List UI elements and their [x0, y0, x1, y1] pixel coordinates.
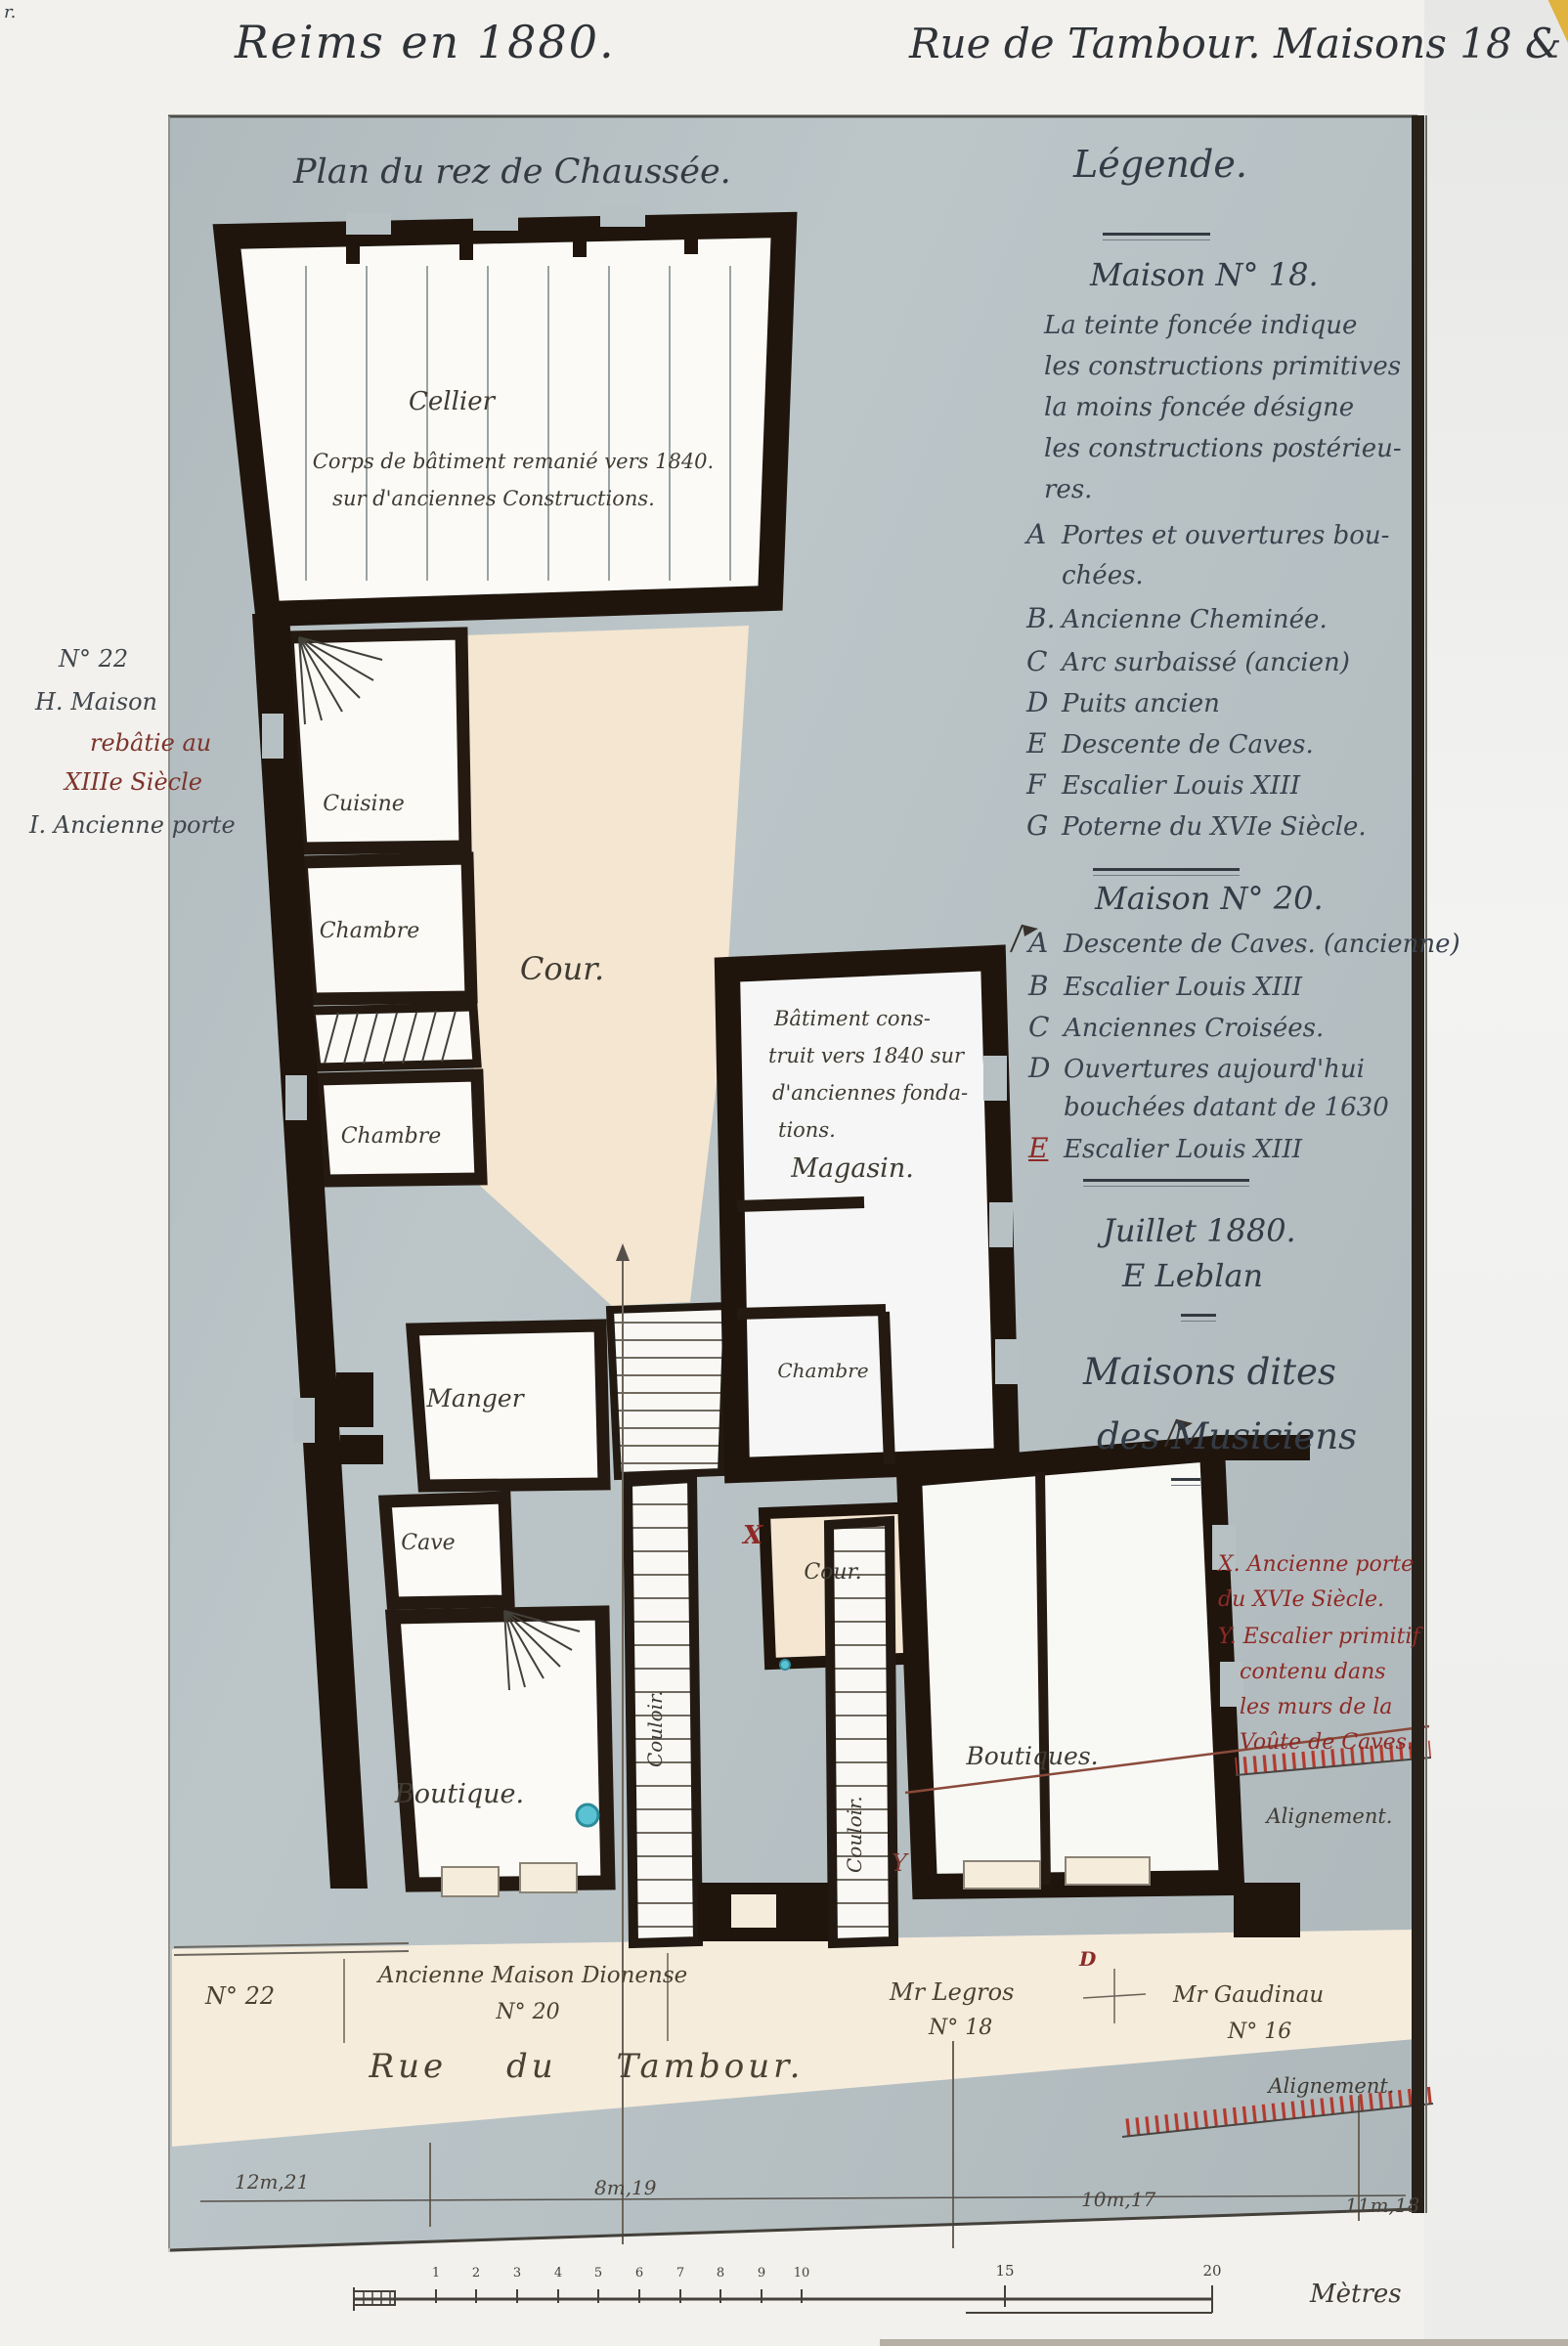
plan-title: Plan du rez de Chaussée. — [293, 152, 731, 192]
legend-letter: C — [1028, 1011, 1064, 1043]
corner-note: r. — [4, 2, 16, 22]
legend-date: Juillet 1880. — [1103, 1212, 1296, 1249]
scale-tick-label: 3 — [513, 2266, 521, 2281]
legend-title: Légende. — [1073, 143, 1247, 186]
room-label-cellier: Cellier — [409, 387, 495, 416]
side-note-line: contenu dans — [1240, 1660, 1386, 1684]
margin-note-number: N° 22 — [59, 645, 128, 673]
legend-intro-line: les constructions primitives — [1044, 352, 1401, 381]
margin-note-line: XIIIe Siècle — [65, 768, 202, 796]
legend-letter-red: E — [1028, 1132, 1064, 1164]
legend-text: Puits ancien — [1062, 689, 1220, 718]
margin-note-line: H. Maison — [35, 688, 157, 716]
legend-letter: B — [1028, 970, 1064, 1002]
legend-letter: D — [1028, 1052, 1064, 1084]
cellier-note-1: Corps de bâtiment remanié vers 1840. — [313, 450, 714, 473]
scale-tick-label: 7 — [676, 2266, 684, 2281]
frontage-n16-number: N° 16 — [1228, 2020, 1291, 2044]
scale-tick-label: 6 — [635, 2266, 643, 2281]
legend-item-m20: EEscalier Louis XIII — [1028, 1132, 1302, 1164]
legend-item-m18: APortes et ouvertures bou- — [1026, 518, 1389, 550]
legend-text: Ouvertures aujourd'hui — [1064, 1055, 1365, 1084]
scale-tick-label: 8 — [717, 2266, 724, 2281]
scale-tick-label: 2 — [472, 2266, 480, 2281]
room-label-boutiques: Boutiques. — [966, 1742, 1098, 1770]
scale-tick-label: 5 — [594, 2266, 602, 2281]
legend-text: Escalier Louis XIII — [1062, 771, 1300, 801]
room-label-boutique: Boutique. — [395, 1779, 524, 1809]
room-label-cour-small: Cour. — [804, 1560, 861, 1585]
scale-unit-label: Mètres — [1310, 2280, 1402, 2309]
legend-intro-line: La teinte foncée indique — [1044, 311, 1357, 340]
legend-heading-m18: Maison N° 18. — [1090, 256, 1319, 293]
room-label-chambre-2: Chambre — [341, 1124, 442, 1149]
scale-tick-label: 10 — [794, 2266, 810, 2281]
side-note-line: Y. Escalier primitif — [1218, 1625, 1420, 1649]
frontage-n18-name: Mr Legros — [890, 1978, 1014, 2006]
legend-letter: A — [1026, 518, 1062, 550]
legend-item-m18: GPoterne du XVIe Siècle. — [1026, 809, 1367, 842]
marker-x: X — [743, 1521, 762, 1550]
legend-letter: D — [1026, 686, 1062, 718]
legend-letter: F — [1026, 768, 1062, 801]
room-label-manger: Manger — [426, 1384, 523, 1412]
margin-note-line: rebâtie au — [90, 729, 211, 757]
legend-letter: G — [1026, 809, 1062, 842]
legend-item-m18: chées. — [1026, 561, 1144, 590]
legend-item-m18: CArc surbaissé (ancien) — [1026, 645, 1350, 677]
page-title-right: Rue de Tambour. Maisons 18 & 20. — [909, 20, 1568, 67]
frontage-n16-name: Mr Gaudinau — [1173, 1982, 1324, 2008]
legend-item-m18: FEscalier Louis XIII — [1026, 768, 1300, 801]
legend-intro-line: la moins foncée désigne — [1044, 393, 1354, 422]
room-label-chambre-3: Chambre — [777, 1359, 868, 1382]
room-label-cuisine: Cuisine — [323, 792, 405, 816]
scale-tick-label-15: 15 — [995, 2262, 1014, 2280]
legend-text: Arc surbaissé (ancien) — [1062, 648, 1350, 677]
archival-plan-page: r. Reims en 1880. Rue de Tambour. Maison… — [0, 0, 1568, 2346]
legend-text: Anciennes Croisées. — [1064, 1014, 1324, 1043]
marker-y: Y — [892, 1849, 907, 1877]
marker-d: D — [1079, 1947, 1096, 1971]
legend-item-m20: DOuvertures aujourd'hui — [1028, 1052, 1365, 1084]
legend-text: Ancienne Cheminée. — [1062, 605, 1328, 634]
legend-dash-1 — [1181, 1314, 1216, 1322]
legend-item-m20: ADescente de Caves. (ancienne) — [1028, 927, 1460, 959]
legend-item-m18: DPuits ancien — [1026, 686, 1220, 718]
scale-tick-label: 1 — [432, 2266, 440, 2281]
legend-letter: E — [1026, 727, 1062, 760]
magasin-note-1: Bâtiment cons- — [774, 1007, 931, 1030]
room-label-chambre-1: Chambre — [320, 919, 420, 943]
legend-rule-1 — [1103, 233, 1210, 240]
legend-item-m20: CAnciennes Croisées. — [1028, 1011, 1324, 1043]
magasin-note-3: d'anciennes fonda- — [772, 1081, 968, 1105]
magasin-note-4: tions. — [778, 1118, 836, 1142]
legend-item-m20: bouchées datant de 1630 — [1028, 1093, 1389, 1122]
frontage-n22: N° 22 — [205, 1982, 275, 2010]
side-note-line: du XVIe Siècle. — [1218, 1587, 1384, 1612]
legend-letter: C — [1026, 645, 1062, 677]
legend-text: Escalier Louis XIII — [1064, 1135, 1302, 1164]
legend-dash-2 — [1171, 1478, 1200, 1486]
legend-subtitle-2: des Musiciens — [1097, 1415, 1357, 1457]
room-label-couloir-left: Couloir. — [643, 1690, 667, 1767]
legend-intro-line: les constructions postérieu- — [1044, 434, 1402, 463]
legend-signature: E Leblan — [1122, 1257, 1263, 1294]
legend-text: Poterne du XVIe Siècle. — [1062, 812, 1367, 842]
frontage-n18-number: N° 18 — [929, 2016, 992, 2040]
legend-letter: B. — [1026, 602, 1062, 634]
legend-text: Escalier Louis XIII — [1064, 973, 1302, 1002]
legend-letter: A — [1028, 927, 1064, 959]
scale-tick-label: 9 — [758, 2266, 765, 2281]
legend-intro-line: res. — [1044, 475, 1092, 504]
room-label-cour-main: Cour. — [520, 950, 604, 987]
legend-item-m18: EDescente de Caves. — [1026, 727, 1314, 760]
legend-text: Descente de Caves. — [1062, 730, 1314, 760]
dimension-value: 11m,18 — [1345, 2194, 1419, 2217]
alignement-label-bottom: Alignement. — [1269, 2074, 1395, 2098]
frontage-n20-name: Ancienne Maison Dionense — [378, 1963, 688, 1988]
dimension-value: 10m,17 — [1081, 2188, 1155, 2211]
side-note-line: X. Ancienne porte — [1218, 1552, 1414, 1577]
dimension-value: 12m,21 — [235, 2170, 309, 2194]
street-name: Rue du Tambour. — [370, 2047, 805, 2086]
legend-rule-3 — [1083, 1179, 1249, 1187]
side-note-line: les murs de la — [1240, 1695, 1392, 1719]
legend-item-m18: B.Ancienne Cheminée. — [1026, 602, 1328, 634]
page-title-left: Reims en 1880. — [235, 16, 616, 68]
legend-heading-m20: Maison N° 20. — [1095, 880, 1324, 917]
legend-text: chées. — [1062, 561, 1144, 590]
magasin-note-2: truit vers 1840 sur — [768, 1044, 964, 1067]
scale-tick-label: 4 — [554, 2266, 562, 2281]
legend-text: Descente de Caves. (ancienne) — [1064, 930, 1460, 959]
dimension-value: 8m,19 — [594, 2176, 657, 2199]
side-note-line: Voûte de Caves. — [1240, 1730, 1414, 1755]
room-label-cave: Cave — [401, 1531, 455, 1555]
legend-text: Portes et ouvertures bou- — [1062, 521, 1389, 550]
legend-rule-2 — [1093, 868, 1240, 876]
frontage-n20-number: N° 20 — [496, 2000, 559, 2024]
grand-staircase — [610, 1306, 727, 1476]
alignement-label-mid: Alignement. — [1267, 1804, 1393, 1828]
legend-text: bouchées datant de 1630 — [1064, 1093, 1389, 1122]
room-label-magasin: Magasin. — [791, 1153, 914, 1184]
margin-note-line: I. Ancienne porte — [29, 811, 236, 839]
cellier-note-2: sur d'anciennes Constructions. — [332, 487, 655, 510]
scale-tick-label-20: 20 — [1202, 2262, 1221, 2280]
legend-subtitle-1: Maisons dites — [1083, 1351, 1336, 1393]
room-label-couloir-right: Couloir. — [843, 1796, 866, 1873]
scale-bar — [354, 2285, 1212, 2313]
legend-item-m20: BEscalier Louis XIII — [1028, 970, 1302, 1002]
